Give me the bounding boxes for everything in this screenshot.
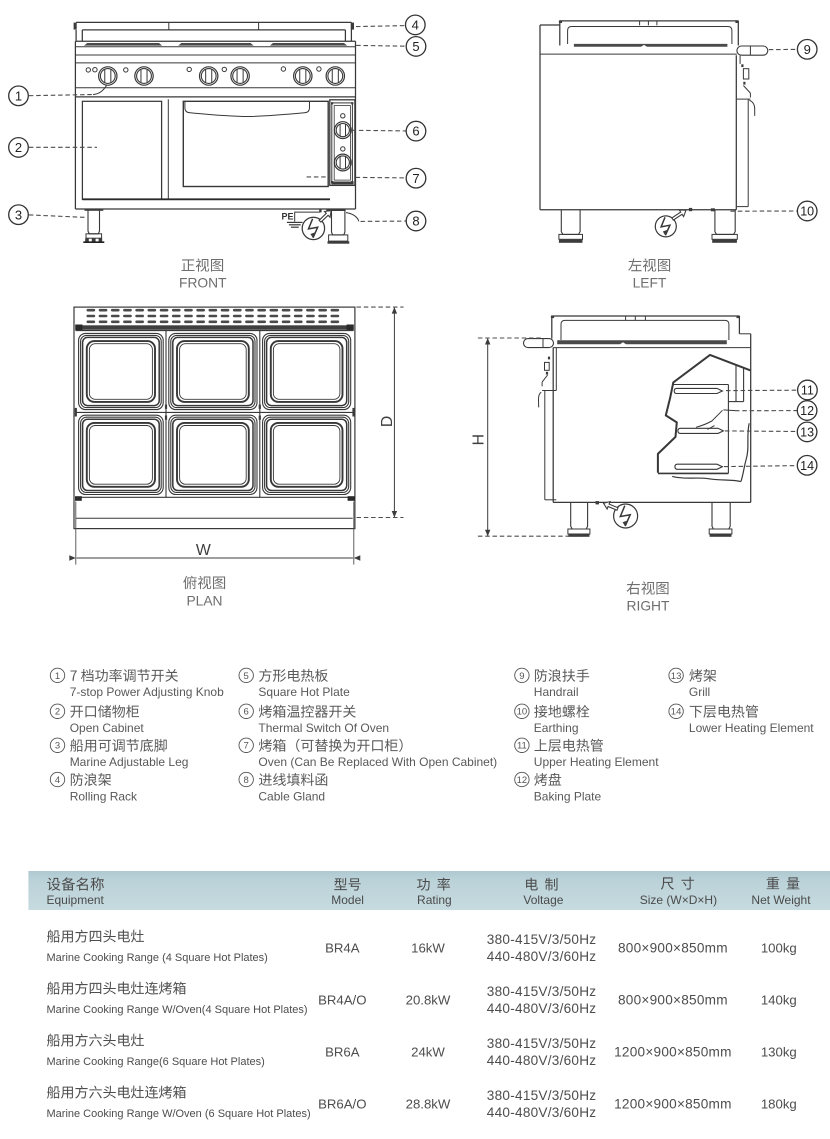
svg-text:Thermal Switch Of Oven: Thermal Switch Of Oven <box>258 721 389 735</box>
svg-text:3: 3 <box>55 741 60 752</box>
svg-text:Rating: Rating <box>417 893 452 907</box>
svg-text:9: 9 <box>804 42 811 57</box>
svg-text:14: 14 <box>800 459 814 473</box>
svg-text:Lower Heating Element: Lower Heating Element <box>689 721 814 735</box>
svg-text:1: 1 <box>55 671 60 682</box>
svg-text:Oven (Can Be Replaced With Ope: Oven (Can Be Replaced With Open Cabinet) <box>258 755 497 769</box>
svg-text:2: 2 <box>55 707 60 718</box>
svg-text:10: 10 <box>800 205 814 219</box>
svg-text:Handrail: Handrail <box>534 685 579 699</box>
svg-text:1200×900×850mm: 1200×900×850mm <box>614 1097 732 1112</box>
svg-text:FRONT: FRONT <box>179 276 227 291</box>
svg-text:2: 2 <box>15 140 22 155</box>
svg-text:Baking Plate: Baking Plate <box>534 789 602 803</box>
svg-text:D: D <box>379 416 396 427</box>
svg-text:440-480V/3/60Hz: 440-480V/3/60Hz <box>487 1001 597 1016</box>
svg-text:Grill: Grill <box>689 685 710 699</box>
svg-text:6: 6 <box>412 124 419 139</box>
svg-text:W: W <box>196 542 211 559</box>
svg-text:180kg: 180kg <box>761 1097 797 1112</box>
svg-text:28.8kW: 28.8kW <box>406 1097 451 1112</box>
svg-text:Marine Adjustable Leg: Marine Adjustable Leg <box>70 755 189 769</box>
svg-text:7: 7 <box>244 741 249 752</box>
svg-text:1200×900×850mm: 1200×900×850mm <box>614 1045 732 1060</box>
svg-text:13: 13 <box>800 426 814 440</box>
svg-text:Voltage: Voltage <box>523 893 563 907</box>
svg-text:440-480V/3/60Hz: 440-480V/3/60Hz <box>487 1053 597 1068</box>
svg-text:4: 4 <box>55 775 60 786</box>
svg-text:20.8kW: 20.8kW <box>406 993 451 1008</box>
svg-text:6: 6 <box>244 707 249 718</box>
svg-text:100kg: 100kg <box>761 941 797 956</box>
svg-text:Net Weight: Net Weight <box>751 893 811 907</box>
svg-text:Earthing: Earthing <box>534 721 579 735</box>
svg-text:7-stop Power Adjusting Knob: 7-stop Power Adjusting Knob <box>70 685 224 699</box>
svg-text:4: 4 <box>412 18 419 33</box>
svg-text:13: 13 <box>671 671 682 682</box>
svg-text:Size (W×D×H): Size (W×D×H) <box>640 893 717 907</box>
svg-text:BR6A: BR6A <box>325 1045 360 1060</box>
svg-text:380-415V/3/50Hz: 380-415V/3/50Hz <box>487 1088 597 1103</box>
svg-text:5: 5 <box>412 39 419 54</box>
svg-text:Model: Model <box>331 893 364 907</box>
svg-text:11: 11 <box>517 741 527 752</box>
svg-text:10: 10 <box>517 707 528 718</box>
svg-text:RIGHT: RIGHT <box>627 599 670 614</box>
svg-text:Upper Heating Element: Upper Heating Element <box>534 755 659 769</box>
svg-text:440-480V/3/60Hz: 440-480V/3/60Hz <box>487 1105 597 1120</box>
svg-text:380-415V/3/50Hz: 380-415V/3/50Hz <box>487 932 597 947</box>
svg-text:440-480V/3/60Hz: 440-480V/3/60Hz <box>487 949 597 964</box>
svg-text:BR4A: BR4A <box>325 941 360 956</box>
svg-text:12: 12 <box>800 404 814 418</box>
svg-text:3: 3 <box>15 207 22 222</box>
svg-text:BR4A/O: BR4A/O <box>318 993 366 1008</box>
svg-text:800×900×850mm: 800×900×850mm <box>618 941 728 956</box>
svg-text:12: 12 <box>517 775 528 786</box>
svg-text:Open Cabinet: Open Cabinet <box>70 721 145 735</box>
svg-text:LEFT: LEFT <box>633 276 667 291</box>
svg-text:Marine Cooking Range W/Oven (6: Marine Cooking Range W/Oven (6 Square Ho… <box>47 1108 311 1120</box>
svg-text:BR6A/O: BR6A/O <box>318 1097 366 1112</box>
svg-text:8: 8 <box>244 775 249 786</box>
svg-text:800×900×850mm: 800×900×850mm <box>618 993 728 1008</box>
svg-text:Marine Cooking Range (4 Square: Marine Cooking Range (4 Square Hot Plate… <box>47 952 268 964</box>
svg-text:16kW: 16kW <box>411 941 445 956</box>
svg-text:14: 14 <box>671 707 682 718</box>
svg-text:H: H <box>470 434 487 445</box>
svg-text:140kg: 140kg <box>761 993 797 1008</box>
svg-text:Marine Cooking Range(6 Square: Marine Cooking Range(6 Square Hot Plates… <box>47 1056 265 1068</box>
svg-text:130kg: 130kg <box>761 1045 797 1060</box>
svg-text:Square Hot Plate: Square Hot Plate <box>258 685 350 699</box>
svg-text:8: 8 <box>412 214 419 229</box>
svg-text:Rolling Rack: Rolling Rack <box>70 789 138 803</box>
svg-text:380-415V/3/50Hz: 380-415V/3/50Hz <box>487 1036 597 1051</box>
svg-text:5: 5 <box>244 671 249 682</box>
svg-text:24kW: 24kW <box>411 1045 445 1060</box>
svg-text:Cable Gland: Cable Gland <box>258 789 325 803</box>
svg-text:PLAN: PLAN <box>186 594 222 609</box>
svg-text:PE: PE <box>282 212 294 222</box>
svg-text:Marine Cooking Range W/Oven(4: Marine Cooking Range W/Oven(4 Square Hot… <box>47 1004 308 1016</box>
svg-text:Equipment: Equipment <box>47 893 105 907</box>
svg-text:11: 11 <box>801 384 814 398</box>
svg-text:7: 7 <box>412 171 419 186</box>
svg-text:9: 9 <box>519 671 524 682</box>
svg-text:380-415V/3/50Hz: 380-415V/3/50Hz <box>487 984 597 999</box>
svg-text:1: 1 <box>15 88 22 103</box>
